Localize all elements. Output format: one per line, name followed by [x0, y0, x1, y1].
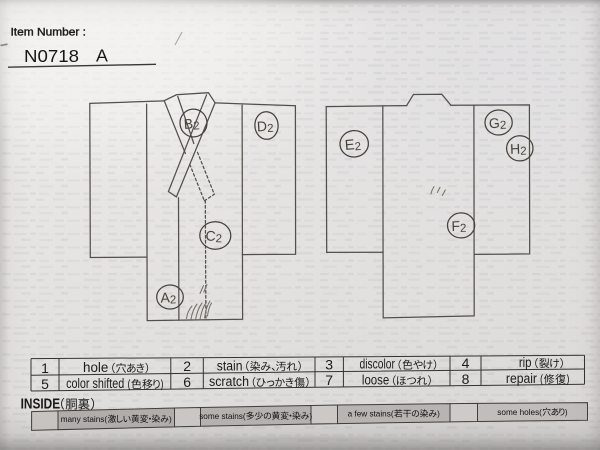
svg-text:color shifted: color shifted [66, 376, 124, 391]
svg-text:5: 5 [41, 376, 49, 392]
svg-text:): ) [437, 410, 440, 419]
svg-text:3: 3 [325, 357, 333, 373]
svg-text:2: 2 [183, 358, 191, 374]
svg-text:some stains(: some stains( [199, 412, 246, 421]
svg-text:6: 6 [183, 374, 191, 390]
svg-text:): ) [565, 408, 568, 417]
svg-text:some holes(: some holes( [497, 408, 542, 417]
svg-text:N0718: N0718 [24, 46, 79, 66]
svg-text:many stains(: many stains( [61, 415, 108, 424]
svg-text:loose: loose [362, 373, 389, 388]
svg-text:a few stains(: a few stains( [348, 410, 394, 419]
svg-text:stain: stain [217, 358, 243, 373]
svg-text:4: 4 [462, 355, 470, 371]
svg-text:1: 1 [41, 360, 49, 376]
svg-text:hole: hole [83, 360, 108, 375]
svg-text:A: A [96, 46, 108, 66]
svg-text:scratch: scratch [209, 374, 249, 389]
svg-text:7: 7 [325, 372, 333, 388]
svg-text:): ) [310, 412, 313, 421]
svg-text:Item Number :: Item Number : [11, 27, 87, 39]
svg-text:discolor: discolor [360, 357, 396, 372]
svg-text:): ) [169, 415, 172, 424]
svg-text:8: 8 [462, 371, 470, 387]
svg-text:rip: rip [519, 355, 532, 370]
svg-text:repair: repair [506, 371, 538, 386]
svg-text:INSIDE: INSIDE [21, 396, 61, 413]
